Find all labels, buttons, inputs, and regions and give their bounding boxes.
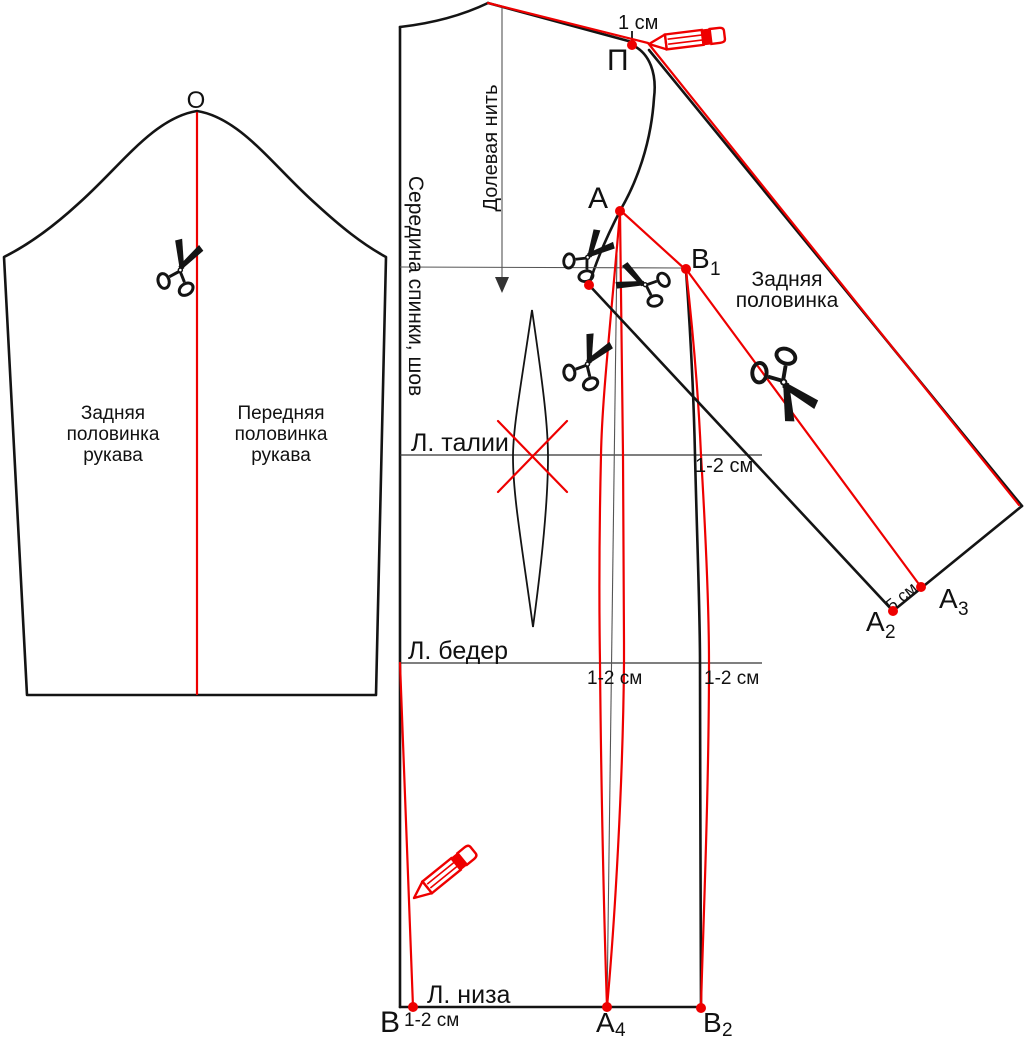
side-seam-black — [686, 270, 701, 1007]
pencil-icon — [648, 27, 725, 51]
label-1cm: 1 см — [618, 12, 658, 34]
point-b-label: В — [380, 1006, 400, 1037]
label-1-2cm-hip-right: 1-2 см — [704, 668, 759, 689]
pencil-icon — [409, 844, 478, 903]
point-dot-a — [615, 206, 625, 216]
chest-guide-line — [400, 267, 686, 268]
attached-sleeve-piece: Задняя половинка 5 см — [488, 3, 1022, 615]
label-1-2cm-hem: 1-2 см — [404, 1010, 459, 1031]
point-dot-b1 — [681, 264, 691, 274]
sleeve-back-label-line2: половинка — [67, 424, 160, 445]
center-back-red-line — [400, 663, 413, 1007]
sleeve-piece: О Задняя половинка рукава Передняя полов… — [4, 87, 386, 695]
label-center-back-seam: Середина спинки, шов — [404, 176, 427, 396]
point-b1-subscript: 1 — [710, 259, 721, 280]
label-5cm: 5 см — [882, 579, 921, 615]
attached-sleeve-label-line1: Задняя — [752, 268, 823, 291]
point-b1-base: В — [691, 243, 710, 274]
underarm-transfer-red-line — [620, 210, 686, 270]
point-o-label: О — [187, 87, 206, 114]
sleeve-front-label-line2: половинка — [235, 424, 328, 445]
label-1-2cm-waist: 1-2 см — [695, 455, 753, 477]
point-dot-a3 — [916, 582, 926, 592]
point-dot-underarm — [584, 280, 594, 290]
point-a2-subscript: 2 — [885, 622, 896, 643]
label-waist-line: Л. талии — [411, 429, 509, 457]
label-hem-line: Л. низа — [427, 981, 511, 1009]
point-b2-subscript: 2 — [722, 1020, 733, 1037]
point-a3-base: А — [939, 583, 958, 614]
scissors-icon — [152, 235, 210, 301]
sleeve-back-label-line3: рукава — [83, 445, 143, 466]
label-grain-line: Долевая нить — [480, 85, 502, 212]
attached-sleeve-label-line2: половинка — [736, 289, 839, 312]
sleeve-front-label-line3: рукава — [251, 445, 311, 466]
attached-sleeve-label: Задняя половинка — [736, 268, 839, 312]
pattern-diagram: О Задняя половинка рукава Передняя полов… — [0, 0, 1024, 1037]
point-dot-a2 — [888, 606, 898, 616]
point-a2-base: А — [866, 606, 885, 637]
point-a-label: А — [588, 182, 608, 215]
sleeve-front-half-label: Передняя половинка рукава — [235, 403, 328, 466]
sleeve-front-label-line1: Передняя — [237, 403, 324, 424]
point-a4-subscript: 4 — [615, 1020, 626, 1037]
point-a3-label: А 3 — [939, 583, 969, 620]
point-a4-base: А — [596, 1007, 615, 1037]
point-b2-base: В — [703, 1007, 722, 1037]
point-a3-subscript: 3 — [958, 599, 969, 620]
sleeve-outline — [4, 111, 386, 695]
scissors-icon — [743, 340, 827, 430]
sleeve-back-half-label: Задняя половинка рукава — [67, 403, 160, 466]
pattern-canvas: О Задняя половинка рукава Передняя полов… — [0, 0, 1024, 1037]
label-1-2cm-hip-left: 1-2 см — [587, 668, 642, 689]
label-hip-line: Л. бедер — [408, 637, 508, 665]
sleeve-underarm-edge-black — [589, 285, 893, 611]
grain-arrowhead-icon — [495, 277, 509, 293]
neckline-curve — [400, 3, 488, 27]
point-b1-label: В 1 — [691, 243, 721, 280]
sleeve-back-label-line1: Задняя — [81, 403, 145, 424]
point-a4-label: А 4 — [596, 1007, 626, 1037]
point-p-label: П — [607, 44, 629, 77]
scissors-icon — [557, 328, 620, 396]
side-seam-red — [686, 270, 709, 1007]
scissors-icon — [557, 223, 622, 288]
point-b2-label: В 2 — [703, 1007, 733, 1037]
